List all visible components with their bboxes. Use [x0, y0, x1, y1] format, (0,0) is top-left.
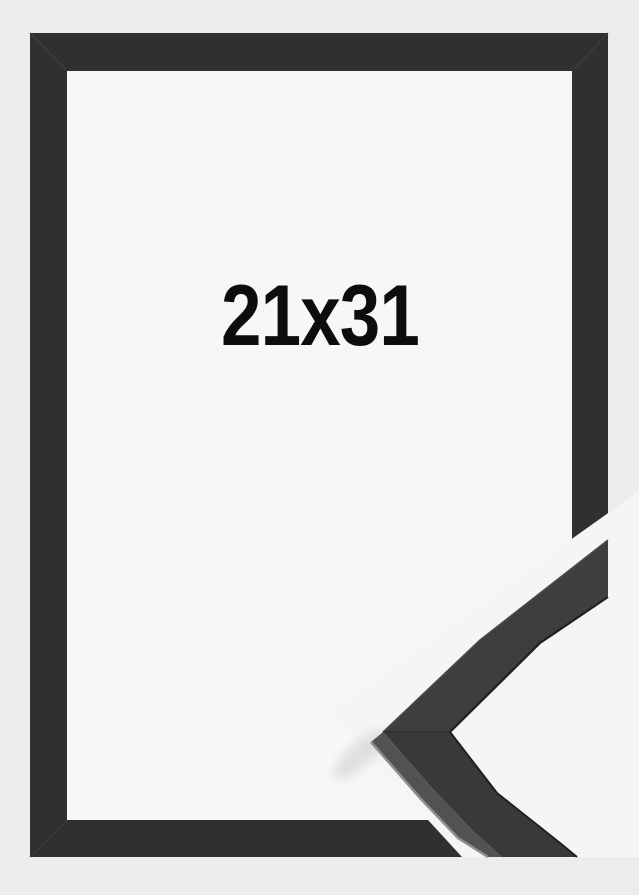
size-label: 21x31	[221, 268, 419, 364]
frame-photo-svg: 21x31	[0, 0, 639, 895]
product-image: 21x31	[0, 0, 639, 895]
